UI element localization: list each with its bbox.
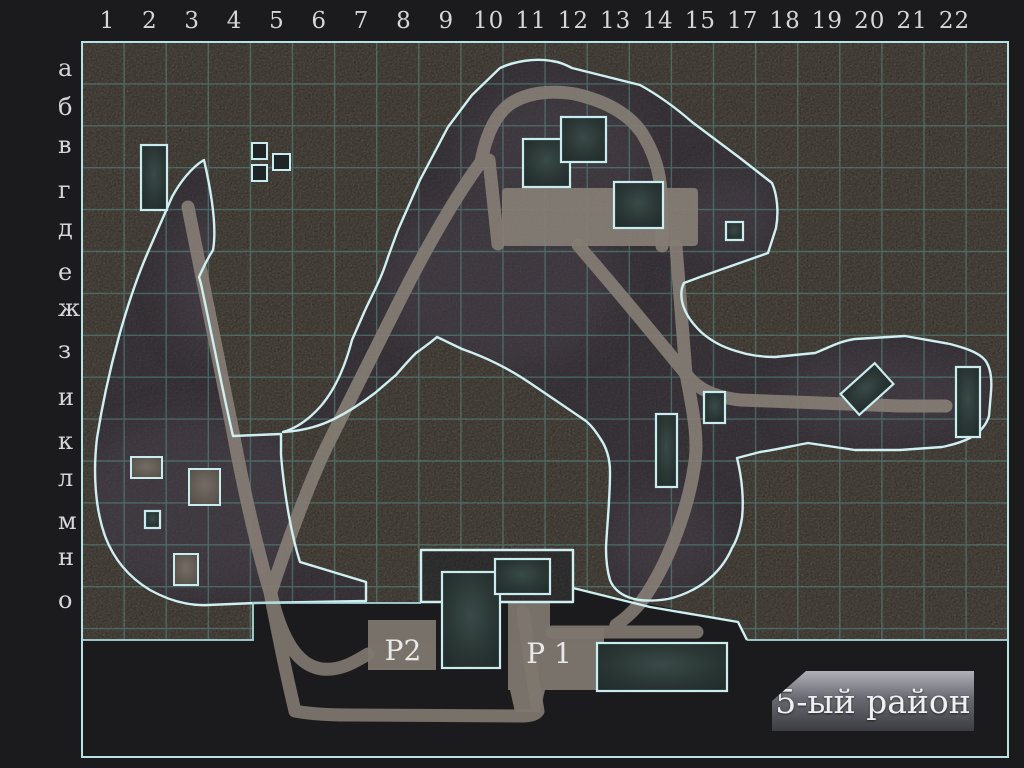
parking-p2-label: P2 — [385, 634, 422, 667]
row-label: б — [58, 93, 72, 121]
row-label: м — [58, 507, 77, 535]
building — [141, 145, 167, 210]
column-label: 1 — [100, 8, 116, 34]
district-banner: 5-ый район — [772, 671, 974, 731]
column-label: 13 — [600, 8, 631, 34]
row-label: ж — [58, 294, 80, 322]
row-label: о — [58, 586, 72, 614]
building — [597, 643, 727, 691]
column-label: 11 — [515, 8, 546, 34]
building — [131, 457, 162, 478]
building — [704, 392, 725, 423]
column-label: 5 — [269, 8, 285, 34]
column-label: 21 — [897, 8, 928, 34]
building — [442, 572, 500, 668]
district-map-screen: P2 P 1 123456789101112131415171819202122… — [0, 0, 1024, 768]
parking-p1-label: P 1 — [526, 637, 572, 670]
column-label: 22 — [939, 8, 970, 34]
row-label: к — [58, 427, 73, 455]
column-label: 3 — [184, 8, 200, 34]
building — [252, 165, 267, 181]
row-label: а — [58, 54, 72, 82]
column-label: 20 — [854, 8, 885, 34]
row-label: е — [58, 258, 72, 286]
building — [273, 154, 290, 170]
row-label: л — [58, 464, 73, 492]
column-label: 14 — [642, 8, 673, 34]
column-label: 8 — [396, 8, 412, 34]
column-label: 12 — [558, 8, 589, 34]
district-banner-label: 5-ый район — [775, 682, 971, 721]
row-label: в — [58, 131, 72, 159]
column-label: 4 — [227, 8, 243, 34]
row-label: и — [58, 383, 74, 411]
row-label: д — [58, 214, 73, 242]
building — [252, 143, 267, 159]
district-map-canvas[interactable]: P2 P 1 — [0, 0, 1024, 768]
column-label: 10 — [473, 8, 504, 34]
row-label: н — [58, 543, 74, 571]
building — [145, 511, 160, 528]
column-label: 6 — [311, 8, 327, 34]
building — [726, 222, 743, 240]
building — [956, 367, 980, 437]
column-label: 7 — [354, 8, 370, 34]
row-label: г — [58, 176, 71, 204]
building — [189, 469, 220, 505]
column-label: 15 — [685, 8, 716, 34]
row-label: з — [58, 336, 71, 364]
building — [656, 414, 677, 487]
building — [614, 182, 663, 228]
column-label: 2 — [142, 8, 158, 34]
column-label: 9 — [438, 8, 454, 34]
column-label: 18 — [769, 8, 800, 34]
column-label: 19 — [812, 8, 843, 34]
column-label: 17 — [727, 8, 758, 34]
building — [174, 554, 198, 585]
building — [561, 117, 606, 162]
building — [495, 559, 550, 594]
